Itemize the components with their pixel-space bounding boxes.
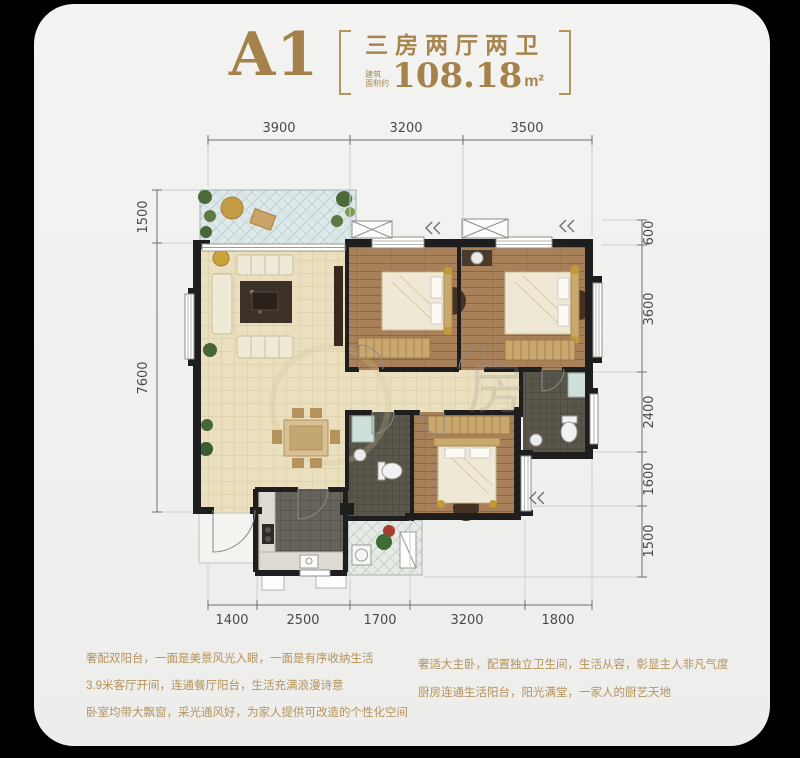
desc-line: 奢配双阳台，一面是美景风光入眼，一面是有序收纳生活 [86, 646, 408, 673]
dim-right-2: 3600 [642, 292, 657, 325]
right-bracket-icon [559, 30, 571, 95]
lamp-symbol [571, 266, 580, 275]
description-right: 奢适大主卧，配置独立卫生间，生活从容，彰显主人非凡气度 厨房连通生活阳台，阳光满… [418, 651, 729, 707]
dim-right-5: 1500 [642, 524, 657, 557]
pillow-symbol [445, 448, 465, 458]
cabinet-symbol [262, 575, 284, 590]
header: A1 三房两厅两卫 建筑 面积约 108.18 m² [0, 24, 800, 95]
watermark-text: 房 [467, 354, 525, 422]
area-unit: m² [524, 71, 544, 93]
sofa-symbol [212, 274, 232, 334]
plant-symbol [200, 226, 212, 238]
round-table-symbol [221, 197, 243, 219]
entry-porch [199, 513, 257, 563]
chair-symbol [330, 430, 340, 444]
tv-cabinet-symbol [334, 266, 343, 346]
layout-type: 三房两厅两卫 [365, 32, 545, 58]
coffee-table-symbol [252, 292, 278, 310]
dim-bottom-2: 2500 [286, 613, 319, 628]
toilet-symbol [561, 422, 577, 442]
side-table-symbol [213, 250, 229, 266]
plant-symbol [204, 210, 216, 222]
dim-bottom-4: 3200 [450, 613, 483, 628]
lamp-symbol [444, 327, 452, 335]
window-symbol [372, 237, 424, 248]
area-line: 建筑 面积约 108.18 m² [365, 59, 545, 93]
dim-top-3: 3500 [510, 121, 543, 136]
chair-symbol [272, 430, 282, 444]
headboard-symbol [571, 268, 579, 338]
basin-symbol [530, 434, 542, 446]
desc-line: 奢适大主卧，配置独立卫生间，生活从容，彰显主人非凡气度 [418, 651, 729, 679]
desc-line: 厨房连通生活阳台，阳光满堂，一家人的厨艺天地 [418, 679, 729, 707]
sink-symbol [300, 555, 318, 568]
dim-left-1: 1500 [136, 200, 151, 233]
header-bracket-block: 三房两厅两卫 建筑 面积约 108.18 m² [339, 30, 571, 95]
plant-symbol [198, 190, 212, 204]
area-prefix: 建筑 面积约 [365, 70, 389, 88]
desc-line: 3.9米客厅开间，连通餐厅阳台，生活充满浪漫诗意 [86, 673, 408, 700]
window-symbol [300, 570, 330, 576]
plan-code: A1 [229, 24, 319, 86]
lamp-symbol [444, 267, 452, 275]
bay-window-symbol [593, 283, 602, 357]
desc-line: 卧室均带大飘窗，采光通风好，为家人提供可改造的个性化空间 [86, 700, 408, 727]
plant-symbol [199, 442, 213, 456]
toilet-symbol [382, 463, 402, 479]
plant-symbol [201, 419, 213, 431]
pillow-symbol [558, 305, 569, 326]
floor-plan: 3900 3200 3500 1400 2500 1700 3200 1800 … [135, 118, 665, 640]
left-bracket-icon [339, 30, 351, 95]
dim-top-1: 3900 [262, 121, 295, 136]
cabinet-symbol [316, 575, 346, 588]
lamp-symbol [437, 500, 445, 508]
plant-symbol [203, 343, 217, 357]
pillow-symbol [431, 303, 442, 324]
washing-machine-symbol [352, 545, 371, 565]
chair-symbol [310, 408, 322, 418]
plant-symbol [376, 534, 392, 550]
dim-bottom-3: 1700 [363, 613, 396, 628]
chair-symbol [310, 458, 322, 468]
dim-bottom-1: 1400 [215, 613, 248, 628]
bay-window-symbol [185, 294, 194, 359]
shower-symbol [352, 416, 374, 442]
pillow-symbol [431, 277, 442, 298]
chair-symbol [292, 408, 304, 418]
pillow-symbol [558, 278, 569, 299]
dim-right-3: 2400 [642, 395, 657, 428]
dim-right-4: 1600 [642, 462, 657, 495]
window-symbol [496, 237, 552, 248]
floor-plan-svg: 3900 3200 3500 1400 2500 1700 3200 1800 … [135, 118, 665, 640]
dim-top-2: 3200 [389, 121, 422, 136]
headboard-symbol [444, 268, 452, 334]
chair-symbol [292, 458, 304, 468]
wardrobe-symbol [358, 338, 430, 358]
lamp-symbol [489, 500, 497, 508]
plant-symbol [331, 215, 343, 227]
dim-right-1: 600 [642, 221, 657, 246]
dim-left-2: 7600 [136, 361, 151, 394]
headboard-symbol [434, 438, 500, 446]
bay-window-symbol [521, 456, 531, 511]
basin-symbol [354, 449, 366, 461]
basin-symbol [471, 252, 483, 264]
dim-bottom-5: 1800 [541, 613, 574, 628]
pillow-symbol [470, 448, 490, 458]
area-value: 108.18 [392, 59, 522, 93]
description-left: 奢配双阳台，一面是美景风光入眼，一面是有序收纳生活 3.9米客厅开间，连通餐厅阳… [86, 646, 408, 727]
shower-symbol [568, 373, 586, 397]
